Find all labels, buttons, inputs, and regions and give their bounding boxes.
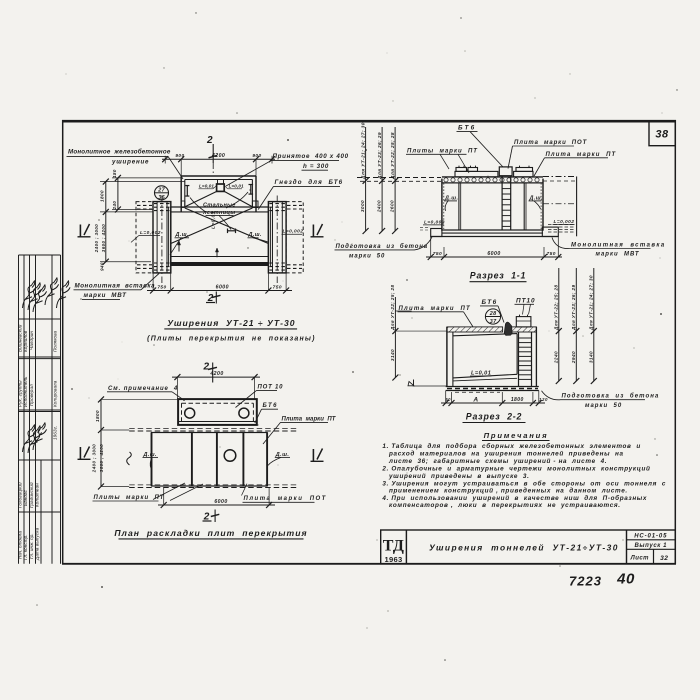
svg-text:38: 38 — [655, 129, 669, 141]
svg-text:900: 900 — [175, 153, 184, 159]
svg-text:7223: 7223 — [569, 574, 602, 589]
svg-text:НС-01-05: НС-01-05 — [634, 534, 667, 540]
svg-text:Для УТ-21; 24; 27; 30: Для УТ-21; 24; 27; 30 — [589, 275, 594, 331]
svg-text:6000: 6000 — [214, 499, 227, 505]
svg-text:1800: 1800 — [511, 397, 524, 403]
svg-text:Д.ш.: Д.ш. — [143, 452, 158, 458]
svg-text:50: 50 — [445, 397, 451, 402]
svg-text:(Плиты перекрытия не показа: (Плиты перекрытия не показаны) — [147, 335, 315, 342]
svg-text:Для УТ-21; 24; 27; 30: Для УТ-21; 24; 27; 30 — [360, 122, 365, 180]
svg-text:Плита марки ПОТ: Плита марки ПОТ — [514, 140, 588, 146]
svg-text:2600: 2600 — [390, 200, 395, 213]
svg-text:2: 2 — [206, 135, 213, 146]
svg-text:Монолитное железобетонное: Монолитное железобетонное — [68, 149, 171, 156]
svg-text:Плита марки ПТ: Плита марки ПТ — [546, 152, 617, 158]
svg-text:применением конструкций , при: применением конструкций , приведенных на… — [389, 487, 628, 495]
svg-text:28: 28 — [489, 311, 497, 317]
svg-text:Полякова: Полякова — [53, 330, 58, 352]
svg-text:2240: 2240 — [553, 351, 558, 364]
svg-text:Разрез 2-2: Разрез 2-2 — [466, 411, 522, 421]
svg-text:Чалдрин: Чалдрин — [29, 331, 34, 350]
svg-text:L=0,002: L=0,002 — [140, 230, 161, 236]
svg-text:лестницы: лестницы — [202, 210, 235, 216]
svg-text:3140: 3140 — [588, 351, 593, 363]
svg-text:L=0,01: L=0,01 — [211, 211, 217, 229]
svg-text:Дата выпуска: Дата выпуска — [35, 527, 40, 561]
svg-text:3. Уширения могут устраивать: 3. Уширения могут устраиваться в обе сто… — [382, 479, 666, 487]
svg-text:Лист: Лист — [630, 555, 649, 561]
svg-text:Градинский: Градинский — [28, 482, 34, 508]
svg-text:Для УТ-22; 25; 28: Для УТ-22; 25; 28 — [390, 285, 395, 331]
svg-text:750: 750 — [157, 284, 166, 290]
svg-text:Плиты марки ПТ: Плиты марки ПТ — [407, 148, 478, 154]
svg-text:32: 32 — [660, 555, 668, 562]
svg-text:1. Таблица для подбора сбор: 1. Таблица для подбора сборных железобет… — [382, 442, 641, 450]
svg-text:Головицкий: Головицкий — [17, 482, 23, 508]
svg-text:Проверил: Проверил — [29, 384, 34, 406]
svg-text:37: 37 — [490, 319, 497, 325]
svg-text:180: 180 — [112, 169, 117, 178]
svg-text:750: 750 — [433, 251, 442, 257]
svg-text:марки МВТ: марки МВТ — [84, 292, 128, 299]
svg-text:Для УТ-22; 25; 28: Для УТ-22; 25; 28 — [554, 285, 559, 331]
svg-text:Подготовка из бетона: Подготовка из бетона — [562, 393, 660, 400]
svg-text:2940: 2940 — [571, 351, 576, 364]
svg-text:Для УТ-23; 26; 29: Для УТ-23; 26; 29 — [377, 132, 382, 180]
svg-text:Д.ш.: Д.ш. — [175, 232, 190, 238]
svg-text:марки 50: марки 50 — [585, 403, 622, 409]
svg-text:1963: 1963 — [384, 555, 402, 564]
svg-text:2400 ; 3000: 2400 ; 3000 — [91, 444, 96, 473]
svg-text:4. При использовании уширени: 4. При использовании уширений в качестве… — [381, 494, 647, 502]
svg-text:марки МВТ: марки МВТ — [596, 252, 640, 258]
svg-text:3600 ; 4200: 3600 ; 4200 — [99, 444, 104, 472]
svg-text:750: 750 — [547, 251, 556, 257]
svg-text:листе 36; габаритные схемы: листе 36; габаритные схемы уширений - на… — [388, 457, 607, 465]
svg-text:2400: 2400 — [377, 200, 382, 213]
svg-text:Подготовка из бетона: Подготовка из бетона — [336, 243, 428, 250]
svg-text:940: 940 — [99, 262, 104, 271]
svg-text:БТ6: БТ6 — [482, 299, 498, 306]
svg-text:6000: 6000 — [487, 251, 500, 257]
svg-text:h = 300: h = 300 — [303, 163, 329, 170]
svg-text:Бандас: Бандас — [23, 489, 28, 506]
svg-text:Нач. отдела: Нач. отдела — [18, 531, 23, 559]
svg-text:1800: 1800 — [100, 190, 105, 202]
svg-text:240: 240 — [112, 201, 117, 211]
svg-text:750: 750 — [273, 284, 282, 290]
svg-text:компенсаторов , люки в пере: компенсаторов , люки в перекрытиях не ус… — [389, 502, 621, 509]
svg-text:ТД: ТД — [383, 538, 405, 555]
svg-text:L=0,002: L=0,002 — [424, 219, 445, 225]
svg-text:Выпуск 1: Выпуск 1 — [634, 543, 667, 549]
svg-text:расход материалов на уширен: расход материалов на уширения тоннелей п… — [388, 450, 624, 458]
svg-text:40: 40 — [616, 571, 635, 588]
svg-text:Исполнитель: Исполнитель — [23, 376, 28, 407]
svg-text:Д.ш.: Д.ш. — [444, 195, 459, 201]
svg-text:БТ6: БТ6 — [263, 403, 279, 409]
svg-text:БТ6: БТ6 — [458, 125, 476, 132]
svg-text:Принятое 400 х 400: Принятое 400 х 400 — [273, 153, 349, 160]
svg-text:L=0,002: L=0,002 — [554, 219, 575, 225]
svg-text:ПТ10: ПТ10 — [516, 297, 536, 304]
svg-text:L=0,01: L=0,01 — [229, 184, 244, 189]
svg-text:3000: 3000 — [360, 200, 365, 212]
svg-text:Д.ш.: Д.ш. — [275, 452, 290, 458]
svg-text:Уширения тоннелей УТ-21÷УТ-3: Уширения тоннелей УТ-21÷УТ-30 — [429, 543, 619, 553]
svg-text:А: А — [472, 396, 478, 403]
svg-text:3140: 3140 — [390, 349, 395, 361]
svg-text:1800: 1800 — [95, 410, 100, 422]
svg-text:36: 36 — [158, 195, 165, 201]
svg-text:марки 50: марки 50 — [349, 253, 385, 259]
svg-text:Разрез 1-1: Разрез 1-1 — [470, 271, 526, 281]
svg-text:Монолитная вставка: Монолитная вставка — [571, 242, 666, 248]
svg-text:1963г.: 1963г. — [53, 426, 58, 440]
svg-text:2: 2 — [202, 362, 209, 373]
svg-text:120: 120 — [539, 397, 548, 402]
svg-text:Для УТ-22; 25; 28: Для УТ-22; 25; 28 — [390, 132, 395, 180]
svg-text:Уширения УТ-21 ÷ УТ-30: Уширения УТ-21 ÷ УТ-30 — [167, 318, 295, 328]
svg-text:2400 ; 3000: 2400 ; 3000 — [94, 224, 99, 253]
svg-text:Гл. инж. пр.: Гл. инж. пр. — [29, 533, 34, 559]
svg-text:27: 27 — [157, 188, 165, 194]
svg-text:Плита марки ПОТ: Плита марки ПОТ — [244, 496, 327, 502]
svg-text:L=0,01: L=0,01 — [199, 184, 214, 189]
svg-text:Гнездо для БТ6: Гнездо для БТ6 — [275, 179, 344, 186]
svg-text:Копировала: Копировала — [53, 380, 58, 407]
svg-text:Д.ш.: Д.ш. — [248, 232, 263, 238]
svg-text:Вишневский: Вишневский — [17, 324, 23, 352]
svg-text:Плиты марки ПТ: Плиты марки ПТ — [94, 495, 165, 501]
svg-text:уширений приведены в выпуск: уширений приведены в выпуске 3. — [388, 472, 530, 480]
svg-text:Примечания: Примечания — [484, 431, 549, 440]
svg-text:См. примечание 4: См. примечание 4 — [108, 386, 178, 392]
svg-text:Плита марки ПТ: Плита марки ПТ — [282, 416, 337, 422]
svg-text:уширение: уширение — [111, 158, 149, 165]
svg-text:Д.ш.: Д.ш. — [529, 195, 544, 201]
svg-text:2. Опалубочные и арматурные: 2. Опалубочные и арматурные чертежи моно… — [381, 465, 650, 473]
svg-text:4200: 4200 — [209, 371, 223, 377]
svg-text:Рук. группы: Рук. группы — [18, 380, 23, 407]
svg-text:Копштейн: Копштейн — [34, 483, 40, 507]
svg-text:Для УТ-23; 26; 29: Для УТ-23; 26; 29 — [571, 285, 576, 331]
svg-text:6000: 6000 — [216, 284, 229, 290]
svg-text:План раскладки плит перекры: План раскладки плит перекрытия — [114, 528, 307, 538]
svg-text:L=0,01: L=0,01 — [471, 370, 491, 376]
svg-text:Корнилов: Корнилов — [23, 330, 28, 352]
svg-text:L=0,002: L=0,002 — [283, 229, 304, 235]
svg-text:Гл. констр.: Гл. констр. — [23, 534, 28, 560]
svg-text:3600 ; 4200: 3600 ; 4200 — [101, 224, 106, 252]
svg-text:900: 900 — [252, 153, 261, 159]
svg-text:ПОТ 10: ПОТ 10 — [258, 384, 284, 390]
